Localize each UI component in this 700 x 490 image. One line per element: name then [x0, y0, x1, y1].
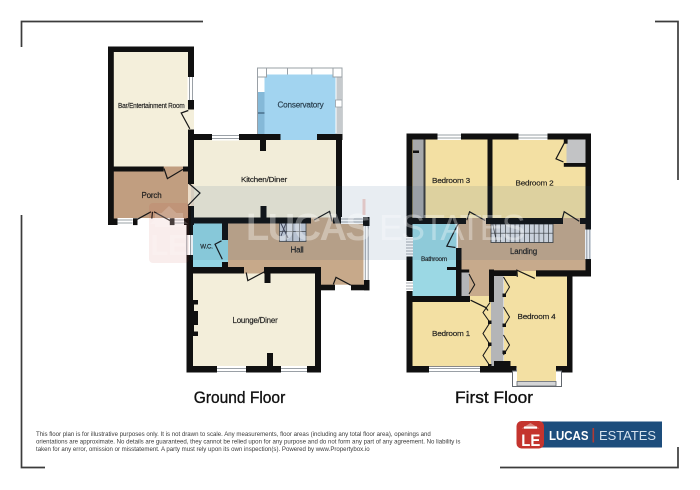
svg-text:Bedroom 1: Bedroom 1: [432, 329, 470, 338]
svg-text:Porch: Porch: [142, 191, 162, 200]
svg-text:ESTATES: ESTATES: [599, 429, 656, 443]
svg-text:This floor plan is for illustr: This floor plan is for illustrative purp…: [36, 431, 431, 438]
svg-text:LUCAS: LUCAS: [246, 207, 370, 249]
svg-text:ESTATES: ESTATES: [379, 207, 525, 248]
svg-text:Bar/Entertainment Room: Bar/Entertainment Room: [118, 103, 185, 110]
svg-text:Kitchen/Diner: Kitchen/Diner: [241, 175, 288, 184]
svg-text:Conservatory: Conservatory: [278, 101, 324, 110]
svg-text:Lounge/Diner: Lounge/Diner: [233, 316, 279, 325]
svg-text:LUCAS: LUCAS: [549, 429, 589, 443]
svg-text:taken for any error, omission: taken for any error, omission or misstat…: [36, 446, 370, 453]
svg-text:Bedroom 3: Bedroom 3: [432, 176, 470, 185]
svg-text:LE: LE: [521, 432, 540, 450]
svg-text:Bedroom 4: Bedroom 4: [518, 312, 556, 321]
svg-text:Ground Floor: Ground Floor: [194, 388, 286, 407]
svg-text:First Floor: First Floor: [455, 388, 533, 407]
svg-text:LE: LE: [150, 230, 187, 262]
svg-text:orientations are approximate.: orientations are approximate. No details…: [36, 439, 460, 446]
